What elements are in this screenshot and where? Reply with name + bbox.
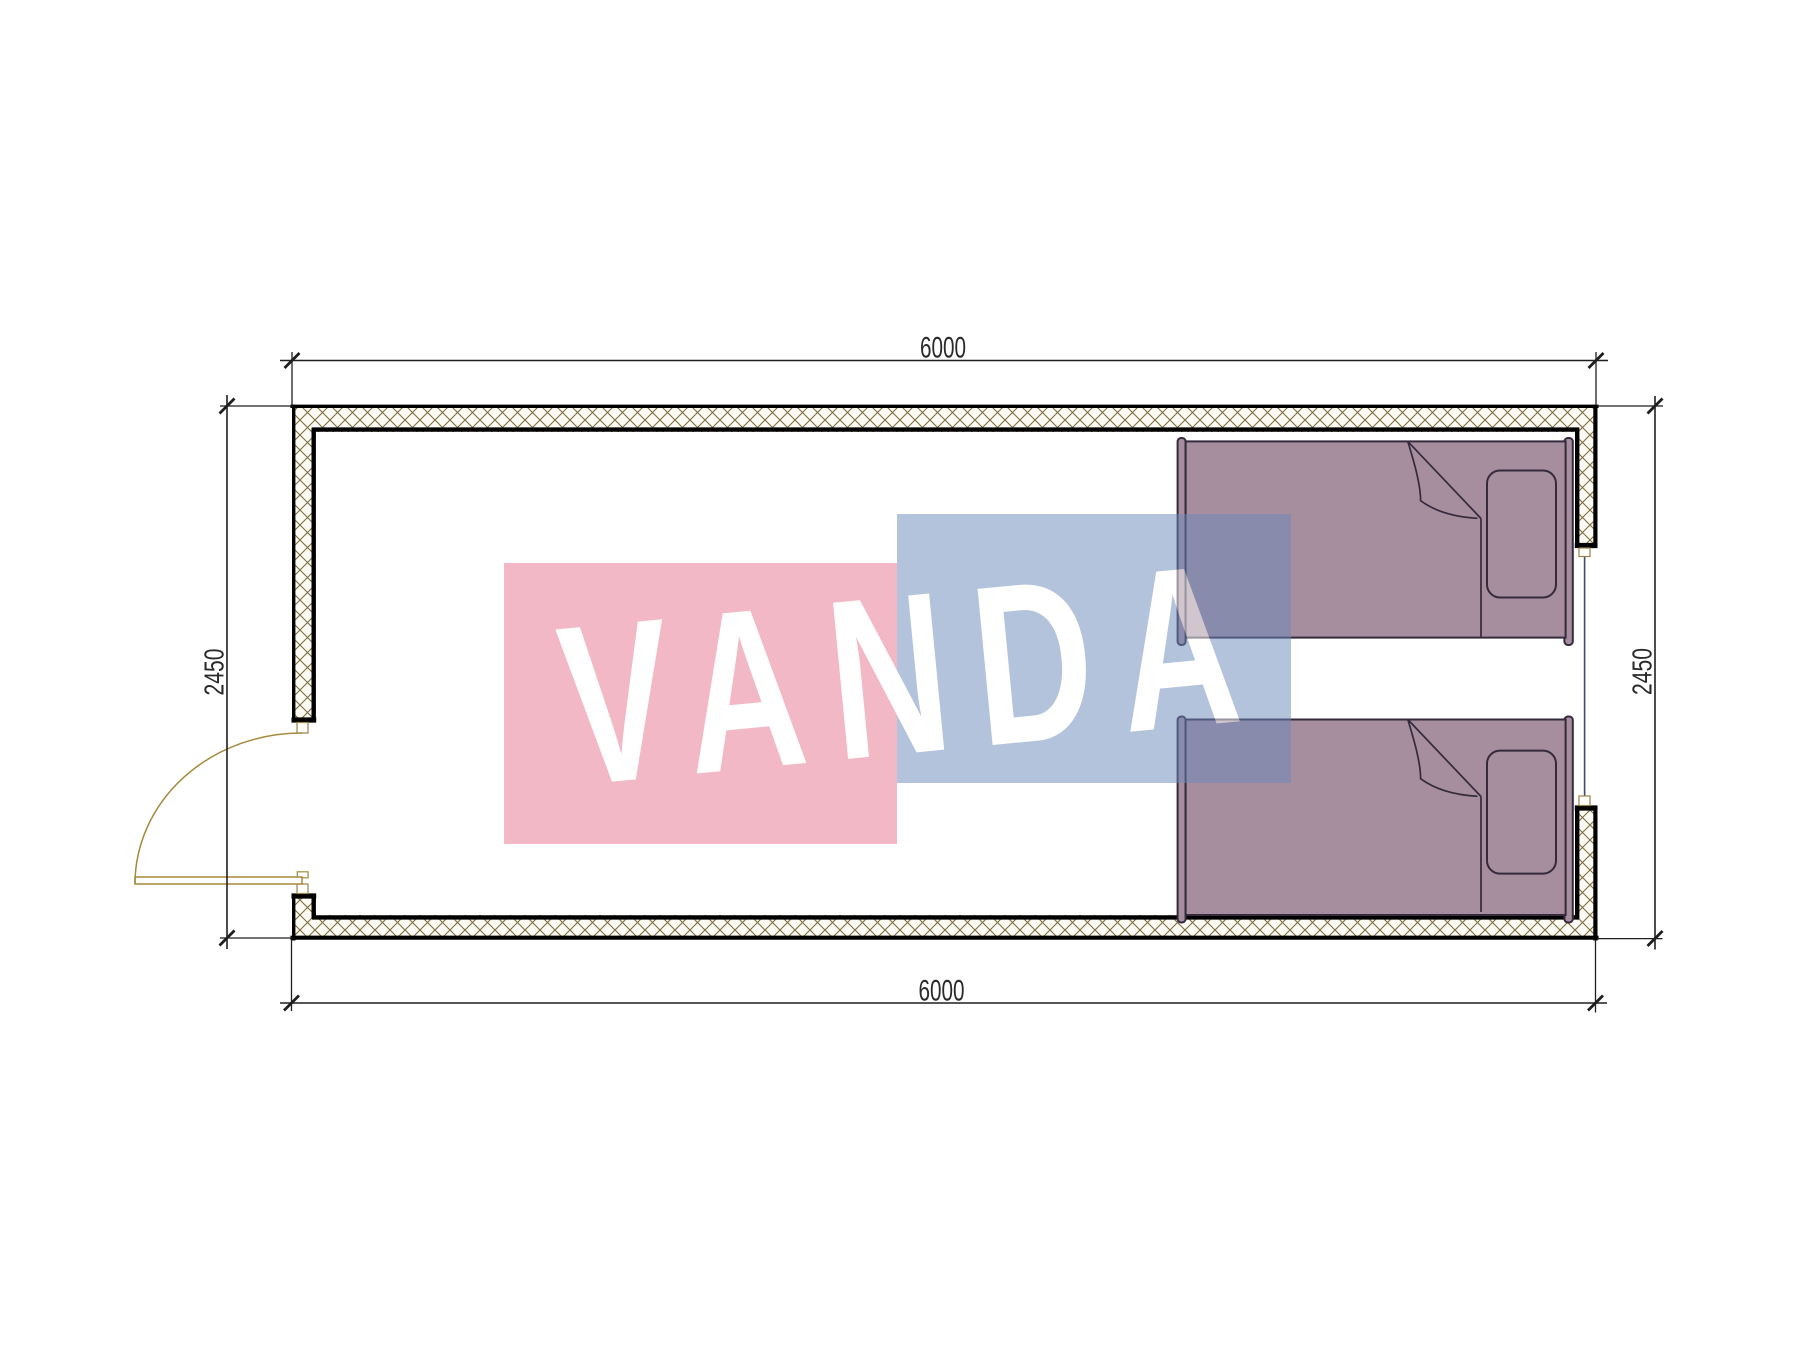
svg-text:6000: 6000 [919,974,965,1007]
svg-text:2450: 2450 [199,649,230,696]
svg-text:6000: 6000 [920,331,966,364]
svg-text:2450: 2450 [1627,648,1658,695]
